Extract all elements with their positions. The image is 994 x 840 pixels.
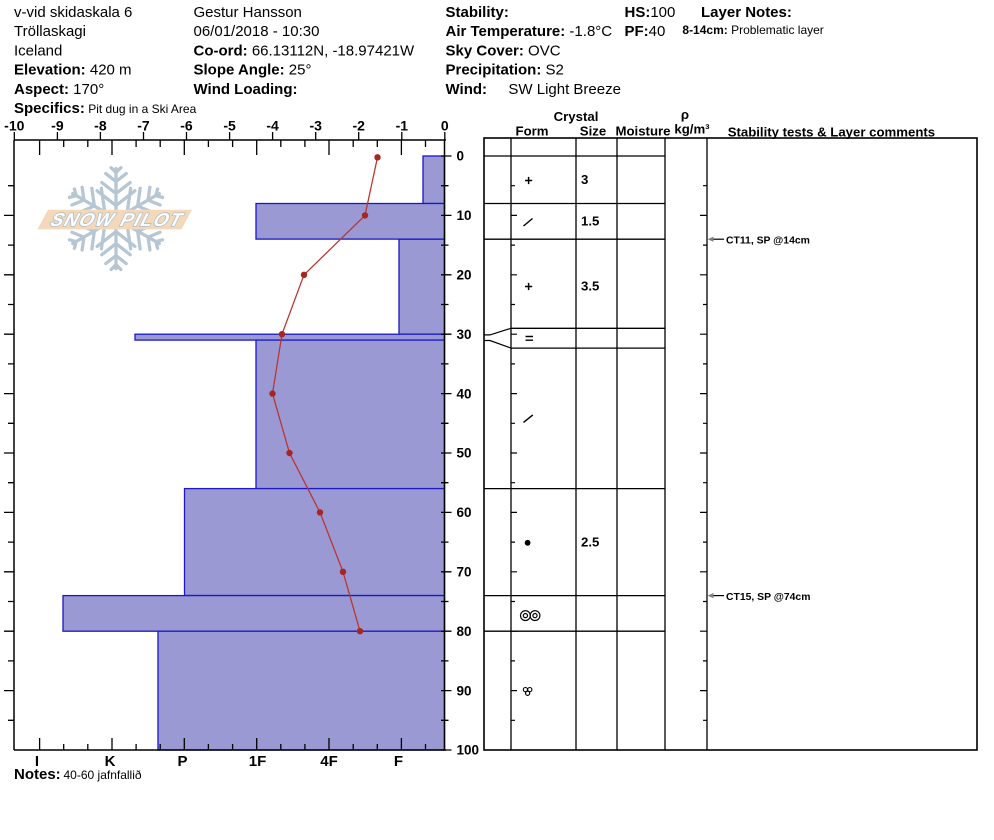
svg-text:Co-ord: 66.13112N, -18.97421W: Co-ord: 66.13112N, -18.97421W [194,42,416,59]
svg-text:90: 90 [457,683,472,698]
svg-text:3.5: 3.5 [581,278,599,293]
svg-text:1.5: 1.5 [581,214,599,229]
svg-text:ρ: ρ [681,107,689,122]
svg-text:Air Temperature: -1.8°C: Air Temperature: -1.8°C [446,23,613,40]
svg-text:10: 10 [457,208,472,223]
svg-text:-5: -5 [223,118,236,134]
svg-text:40: 40 [457,386,472,401]
svg-text:-4: -4 [266,118,279,134]
svg-text:4F: 4F [320,753,338,770]
svg-text:-9: -9 [51,118,64,134]
svg-text:2.5: 2.5 [581,535,599,550]
svg-text:Stability tests & Layer commen: Stability tests & Layer comments [728,125,935,140]
svg-text:HS:100: HS:100 [625,4,676,21]
svg-text:Elevation: 420 m: Elevation: 420 m [14,62,132,79]
svg-text:1F: 1F [249,753,267,770]
svg-text:50: 50 [457,446,472,461]
svg-text:Aspect: 170°: Aspect: 170° [14,81,104,98]
svg-text:Gestur Hansson: Gestur Hansson [194,4,302,21]
svg-text:-8: -8 [94,118,107,134]
svg-text:Precipitation: S2: Precipitation: S2 [446,62,564,79]
svg-text:SNOW PILOT: SNOW PILOT [46,210,188,231]
svg-text:CT15, SP @74cm: CT15, SP @74cm [726,592,810,603]
svg-text:100: 100 [457,743,480,758]
svg-text:-7: -7 [137,118,150,134]
svg-text:v-vid skidaskala 6: v-vid skidaskala 6 [14,4,132,21]
svg-text:Crystal: Crystal [554,109,599,124]
svg-text:Sky Cover: OVC: Sky Cover: OVC [446,42,561,59]
svg-text:-10: -10 [4,118,24,134]
svg-text:-2: -2 [352,118,365,134]
svg-text:60: 60 [457,505,472,520]
svg-text:Tröllaskagi: Tröllaskagi [14,23,86,40]
svg-text:Specifics: Pit dug in a Ski Ar: Specifics: Pit dug in a Ski Area [14,100,197,117]
svg-text:Stability:: Stability: [446,4,509,21]
svg-text:CT11, SP @14cm: CT11, SP @14cm [726,236,810,247]
svg-text:70: 70 [457,565,472,580]
svg-text:-3: -3 [309,118,322,134]
svg-text:30: 30 [457,327,472,342]
svg-text:F: F [394,753,403,770]
svg-text:kg/m³: kg/m³ [674,122,710,137]
svg-text:Wind Loading:: Wind Loading: [194,81,298,98]
svg-text:-1: -1 [396,118,409,134]
svg-text:0: 0 [457,149,465,164]
svg-text:P: P [177,753,187,770]
svg-text:PF:40: PF:40 [625,23,666,40]
svg-text:20: 20 [457,268,472,283]
svg-text:Size: Size [580,124,606,139]
svg-text:3: 3 [581,172,588,187]
svg-text:06/01/2018 - 10:30: 06/01/2018 - 10:30 [194,23,320,40]
svg-text:Iceland: Iceland [14,42,62,59]
svg-text:8-14cm: Problematic layer: 8-14cm: Problematic layer [682,23,823,37]
svg-text:Moisture: Moisture [616,124,671,139]
svg-text:80: 80 [457,624,472,639]
svg-text:Slope Angle: 25°: Slope Angle: 25° [194,62,312,79]
svg-text:Layer Notes:: Layer Notes: [701,4,792,21]
svg-text:-6: -6 [180,118,193,134]
svg-text:Form: Form [516,124,549,139]
svg-text:Wind:SW Light Breeze: Wind:SW Light Breeze [446,81,621,98]
svg-text:0: 0 [441,118,449,134]
svg-text:Notes:40-60 jafnfallið: Notes:40-60 jafnfallið [14,766,142,783]
